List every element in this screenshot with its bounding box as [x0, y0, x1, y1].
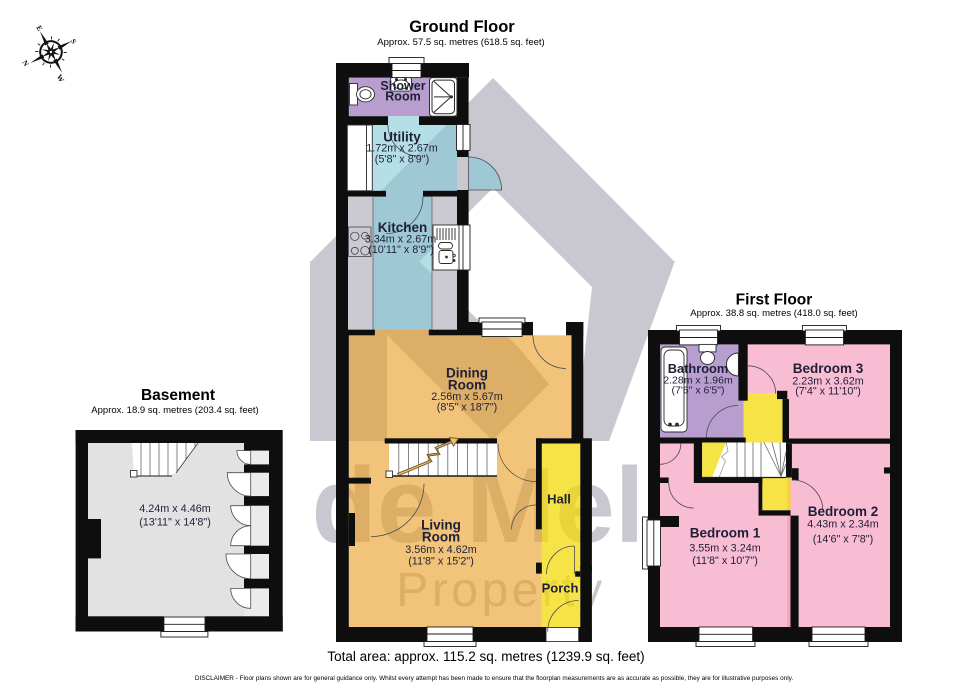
svg-text:Room: Room	[385, 90, 420, 104]
svg-text:Bedroom 1: Bedroom 1	[690, 526, 761, 541]
svg-text:Bedroom 2: Bedroom 2	[808, 504, 879, 519]
svg-text:First Floor: First Floor	[736, 292, 813, 309]
svg-text:(10'11" x 8'9"): (10'11" x 8'9")	[368, 244, 434, 256]
svg-text:Approx. 18.9 sq. metres (203.4: Approx. 18.9 sq. metres (203.4 sq. feet)	[91, 405, 258, 416]
svg-text:DISCLAIMER - Floor plans show: DISCLAIMER - Floor plans shown are for g…	[195, 675, 794, 682]
svg-text:Porch: Porch	[542, 581, 579, 596]
svg-text:(7'4" x 11'10"): (7'4" x 11'10")	[795, 386, 861, 398]
svg-text:Total area: approx. 115.2 sq.: Total area: approx. 115.2 sq. metres (12…	[327, 649, 644, 664]
svg-text:(11'8" x 10'7"): (11'8" x 10'7")	[692, 555, 758, 567]
svg-text:(8'5" x 18'7"): (8'5" x 18'7")	[437, 402, 497, 414]
svg-text:(14'6" x 7'8"): (14'6" x 7'8")	[813, 534, 873, 546]
svg-text:(7'6" x 6'5"): (7'6" x 6'5")	[672, 385, 725, 397]
svg-text:4.43m x 2.34m: 4.43m x 2.34m	[807, 519, 878, 531]
svg-text:4.24m x 4.46m: 4.24m x 4.46m	[139, 503, 210, 515]
svg-text:Hall: Hall	[547, 492, 571, 507]
svg-text:Approx. 57.5 sq. metres (618.5: Approx. 57.5 sq. metres (618.5 sq. feet)	[377, 37, 544, 48]
svg-text:Room: Room	[422, 530, 460, 545]
svg-text:(13'11" x 14'8"): (13'11" x 14'8")	[139, 517, 211, 529]
svg-text:3.56m x 4.62m: 3.56m x 4.62m	[405, 544, 476, 556]
svg-text:Ground Floor: Ground Floor	[409, 18, 515, 36]
svg-text:3.55m x 3.24m: 3.55m x 3.24m	[689, 543, 760, 555]
svg-text:Basement: Basement	[141, 387, 215, 404]
svg-text:(5'8" x 8'9"): (5'8" x 8'9")	[375, 154, 429, 166]
svg-text:Approx. 38.8 sq. metres (418.0: Approx. 38.8 sq. metres (418.0 sq. feet)	[690, 308, 857, 319]
svg-text:(11'8" x 15'2"): (11'8" x 15'2")	[408, 556, 474, 568]
svg-text:Bedroom 3: Bedroom 3	[793, 361, 864, 376]
